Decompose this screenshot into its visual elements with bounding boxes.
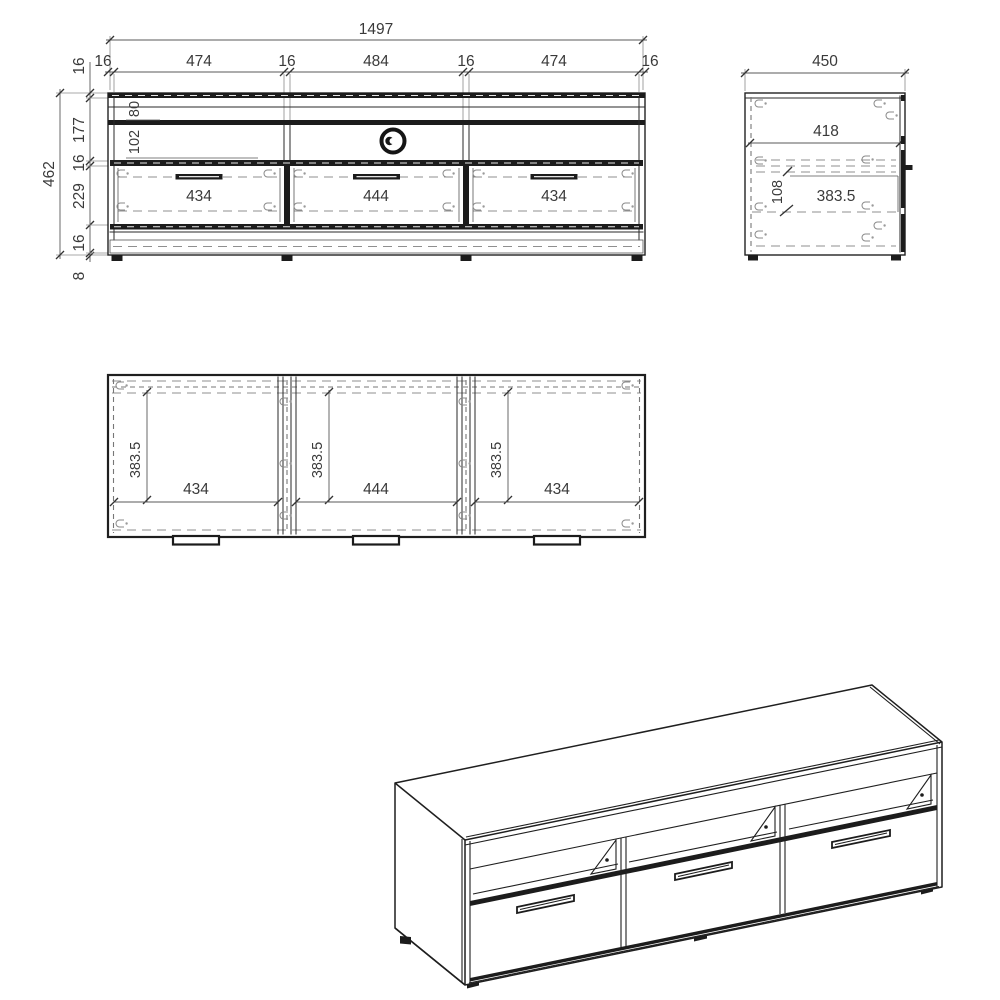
front-hseg-16-mid: 16: [71, 154, 88, 171]
front-hseg-177: 177: [71, 117, 88, 143]
side-interior-depth-label: 418: [813, 123, 839, 140]
front-drawer-width-2: 444: [363, 188, 389, 205]
iso-drawer-handles: [517, 830, 890, 913]
side-feet: [748, 255, 901, 261]
front-seg-16-a: 16: [94, 53, 111, 70]
side-drawer-height-label: 108: [770, 180, 786, 204]
front-drawer-width-3: 434: [541, 188, 567, 205]
plan-depth-2: 383.5: [310, 442, 326, 478]
plan-width-1: 434: [183, 481, 209, 498]
side-overall-depth-label: 450: [812, 53, 838, 70]
front-hseg-16-bottom: 16: [71, 234, 88, 251]
plan-depth-3: 383.5: [489, 442, 505, 478]
front-overall-height-label: 462: [41, 161, 58, 187]
front-seg-474-a: 474: [186, 53, 212, 70]
front-seg-16-c: 16: [457, 53, 474, 70]
drawer-handle: [176, 174, 578, 180]
front-hseg-8: 8: [71, 272, 88, 281]
front-seg-474-b: 474: [541, 53, 567, 70]
front-opening-height-label: 102: [127, 130, 143, 154]
technical-drawing-canvas: 1497 16 474 16 484 16 474 16 462: [0, 0, 1000, 1000]
front-hseg-229: 229: [71, 183, 88, 209]
front-feet: [112, 255, 643, 261]
side-drawer-depth-label: 383.5: [817, 188, 856, 205]
front-view: 1497 16 474 16 484 16 474 16 462: [41, 21, 659, 280]
front-rail-height-label: 80: [127, 101, 143, 117]
front-overall-width-label: 1497: [359, 21, 393, 38]
front-drawer-width-1: 434: [186, 188, 212, 205]
cable-grommet: [382, 130, 405, 153]
plan-width-3: 434: [544, 481, 570, 498]
side-front-edge: [900, 95, 913, 252]
front-seg-16-b: 16: [278, 53, 295, 70]
isometric-view: [395, 685, 942, 989]
side-view: 450 418 108 383.5: [741, 53, 913, 261]
front-hseg-16-top: 16: [71, 57, 88, 74]
top-view: 383.5 383.5 383.5 434 444 434: [108, 375, 645, 545]
front-seg-484: 484: [363, 53, 389, 70]
plan-width-2: 444: [363, 481, 389, 498]
plan-depth-1: 383.5: [128, 442, 144, 478]
front-seg-16-d: 16: [641, 53, 658, 70]
